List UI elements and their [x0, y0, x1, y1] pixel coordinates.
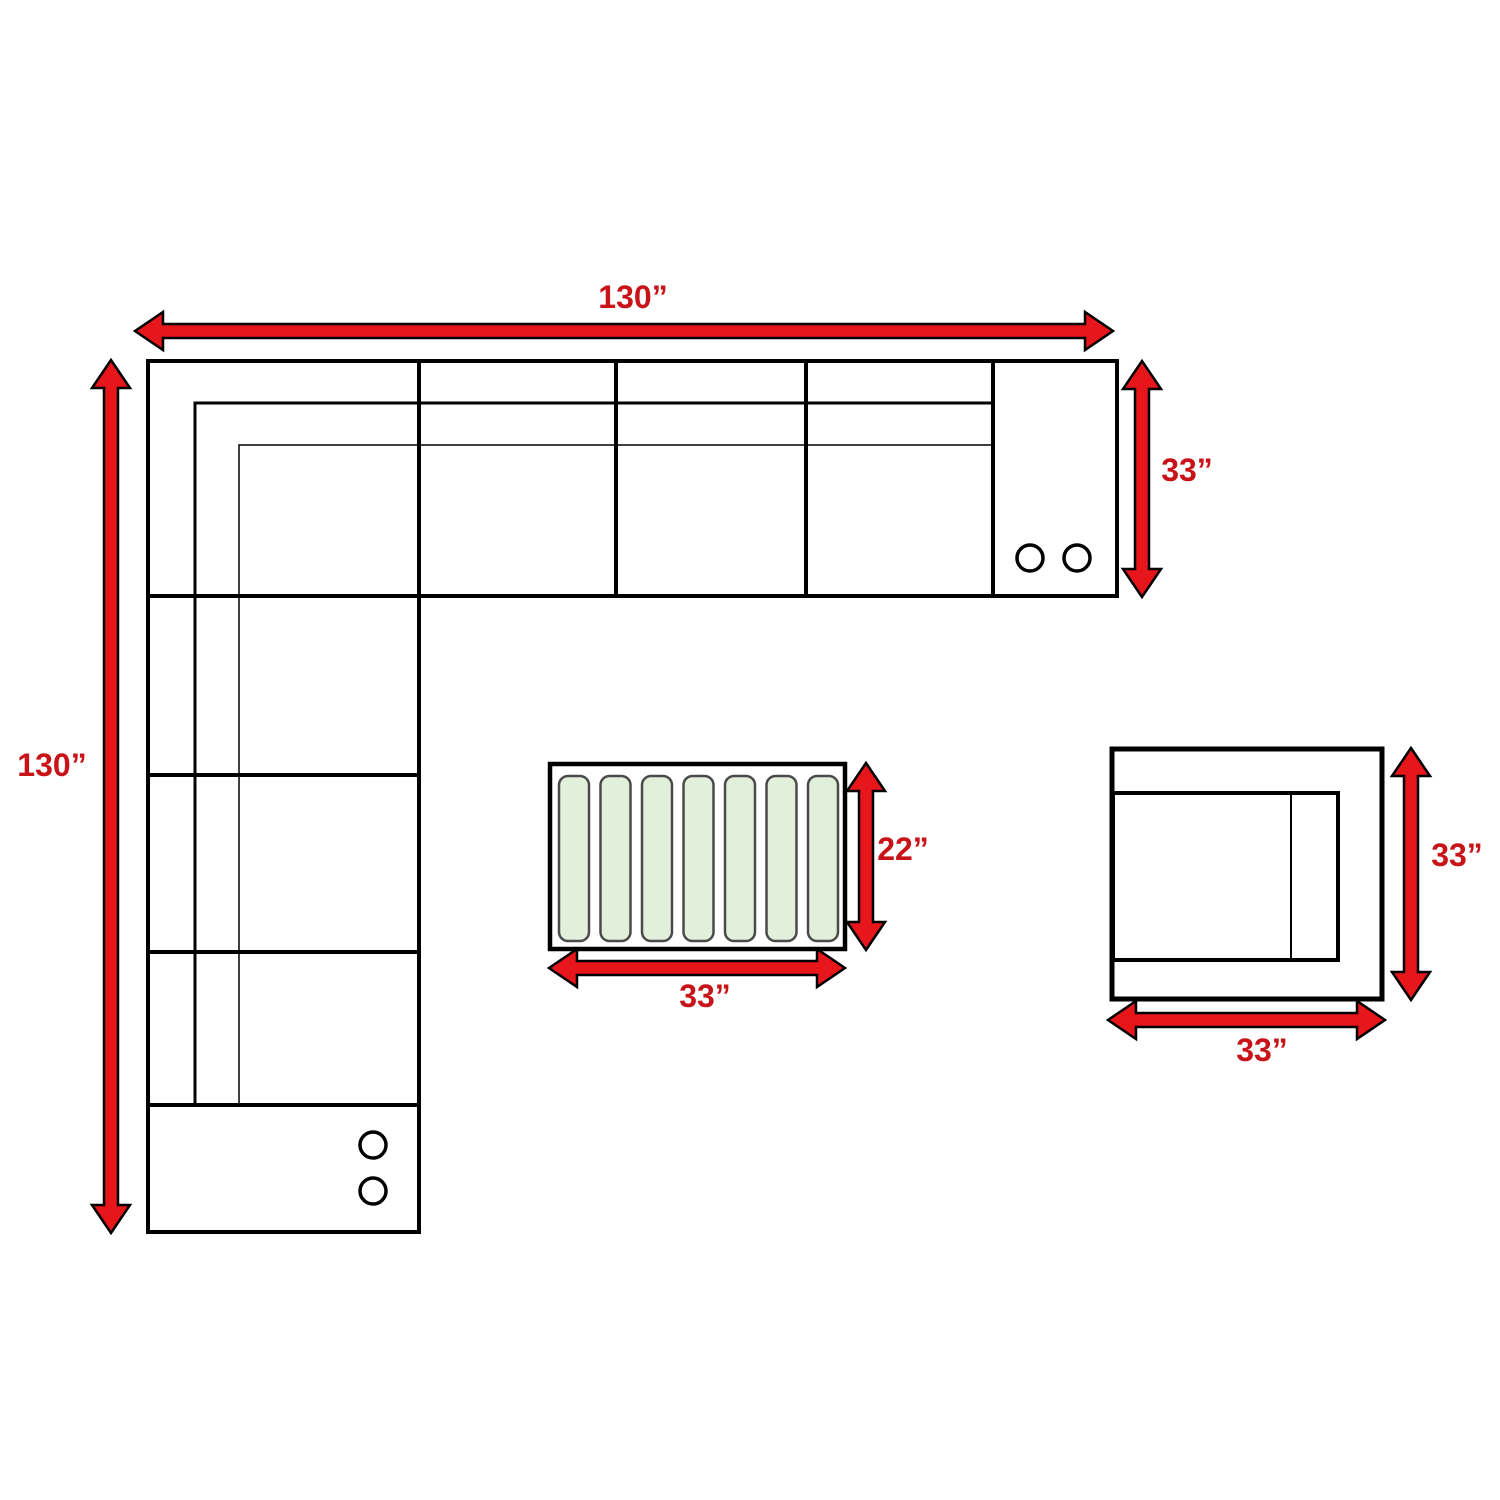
table-slat: [684, 776, 714, 941]
table-slat: [808, 776, 838, 941]
dimension-label-table-depth: 22”: [843, 833, 963, 865]
table-slat: [559, 776, 589, 941]
table-slat: [642, 776, 672, 941]
dimension-label-chair-width: 33”: [1202, 1034, 1322, 1066]
dimension-label-sectional-width: 130”: [573, 281, 693, 313]
dimension-label-sectional-depth: 130”: [0, 749, 112, 781]
dimension-label-table-width: 33”: [645, 980, 765, 1012]
dimension-arrow-sectional-width: [135, 312, 1113, 350]
floor-plan-canvas: [0, 0, 1500, 1500]
dimension-arrow-chair-depth: [1392, 748, 1430, 1000]
chair-seat-outline: [1113, 793, 1338, 960]
dimension-label-sofa-depth: 33”: [1127, 454, 1247, 486]
dimension-arrow-sectional-depth: [92, 360, 130, 1233]
table-slat: [725, 776, 755, 941]
table-slat: [767, 776, 797, 941]
dimension-label-chair-depth: 33”: [1397, 839, 1500, 871]
table-slats: [559, 776, 838, 941]
floor-plan-diagram: 130” 130” 33” 22” 33” 33” 33”: [0, 0, 1500, 1500]
table-slat: [601, 776, 631, 941]
